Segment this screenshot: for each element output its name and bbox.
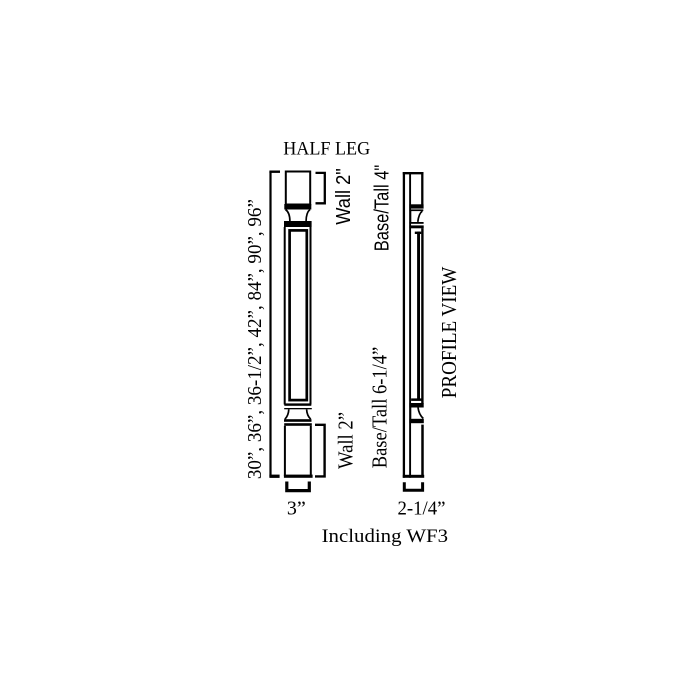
svg-text:PROFILE VIEW: PROFILE VIEW [437,267,461,399]
svg-text:2-1/4”: 2-1/4” [398,498,446,520]
svg-text:30”, 36”, 36-1/2”, 42”, 84”, 9: 30”, 36”, 36-1/2”, 42”, 84”, 90”, 96” [244,199,266,479]
svg-text:Wall 2": Wall 2" [332,168,355,225]
svg-text:3”: 3” [287,498,306,520]
svg-text:Base/Tall 6-1/4”: Base/Tall 6-1/4” [368,347,392,469]
svg-text:HALF LEG: HALF LEG [283,139,370,159]
svg-text:Base/Tall 4": Base/Tall 4" [370,165,393,252]
svg-text:Including WF3: Including WF3 [322,526,449,547]
svg-text:Wall 2”: Wall 2” [333,412,357,469]
